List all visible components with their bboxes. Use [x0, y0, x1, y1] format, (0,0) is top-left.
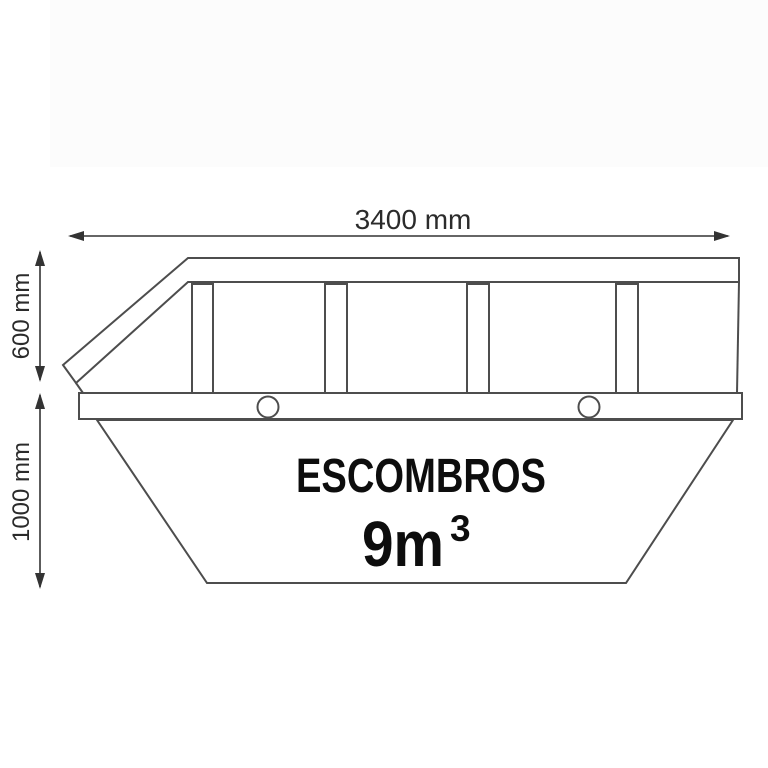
- skip-post: [616, 284, 638, 394]
- lower-height-dimension-label: 1000 mm: [8, 442, 35, 542]
- upper-height-dimension-label: 600 mm: [8, 273, 35, 360]
- skip-diagram: 3400 mm 600 mm 1000 mm ESCOMBROS 9m 3: [0, 0, 768, 768]
- width-dimension-label: 3400 mm: [355, 204, 472, 235]
- container-label: ESCOMBROS: [296, 450, 546, 503]
- skip-post: [467, 284, 489, 394]
- skip-post: [192, 284, 213, 394]
- skip-post: [325, 284, 347, 394]
- volume-base-label: 9m: [362, 508, 444, 580]
- diagram-canvas: 3400 mm 600 mm 1000 mm ESCOMBROS 9m 3: [0, 0, 768, 768]
- rail-hole: [579, 397, 600, 418]
- skip-lifting-rail: [79, 393, 742, 419]
- volume-exponent-label: 3: [450, 508, 471, 549]
- rail-hole: [258, 397, 279, 418]
- background-tint: [50, 0, 768, 167]
